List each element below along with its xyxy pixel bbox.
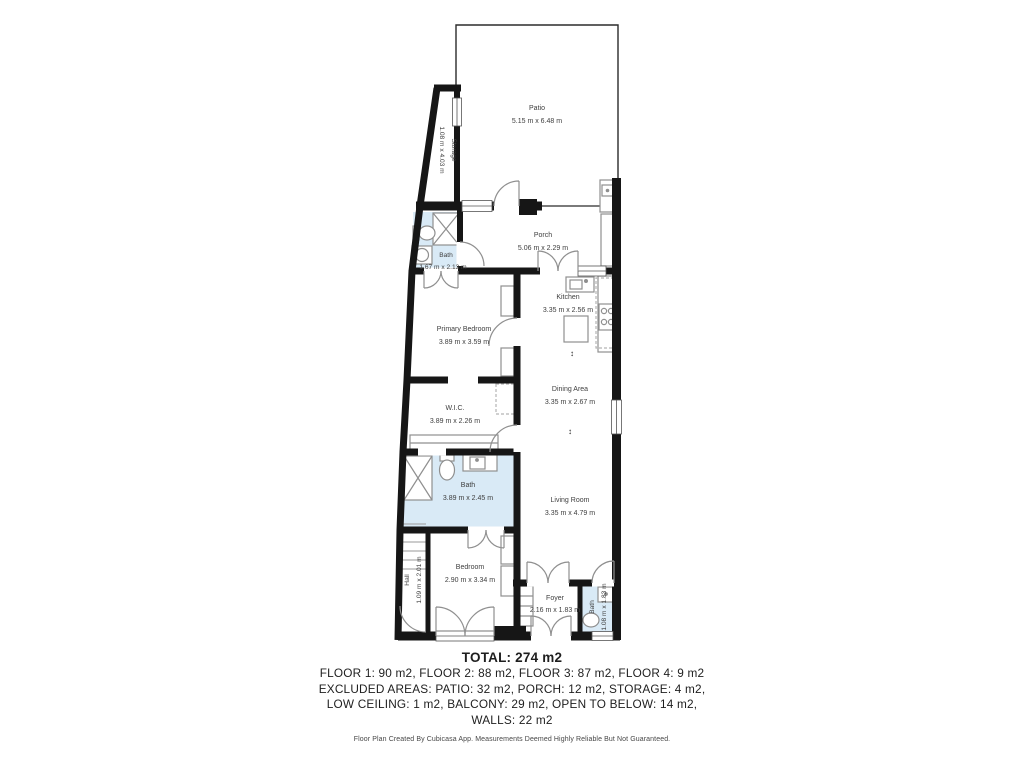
plan-summary: TOTAL: 274 m2 FLOOR 1: 90 m2, FLOOR 2: 8… bbox=[0, 649, 1024, 743]
bath-entry-dims: 1.08 m x 1.83 m bbox=[601, 583, 608, 631]
wic-shelves-dashed bbox=[496, 384, 515, 414]
bath-mid-label: Bath bbox=[461, 482, 476, 489]
porch-label: Porch bbox=[534, 232, 552, 239]
primary-bedroom-label: Primary Bedroom bbox=[437, 326, 492, 333]
disclaimer: Floor Plan Created By Cubicasa App. Meas… bbox=[0, 736, 1024, 743]
walls-area: WALLS: 22 m2 bbox=[0, 713, 1024, 729]
wic-opening bbox=[448, 377, 478, 384]
kitchen-island bbox=[564, 316, 588, 342]
storage-label: Storage bbox=[450, 138, 457, 161]
wic-side-door-gap bbox=[514, 425, 521, 452]
foyer-dims: 2.16 m x 1.83 m bbox=[530, 607, 580, 614]
dining-label: Dining Area bbox=[552, 386, 588, 393]
hall-dims: 1.09 m x 2.01 m bbox=[416, 556, 423, 604]
storage-dims: 1.08 m x 4.03 m bbox=[438, 126, 445, 174]
hall-arc bbox=[400, 606, 426, 632]
patio-sink-drain bbox=[606, 189, 608, 191]
bedroom-closet-2 bbox=[501, 566, 514, 596]
porch-door-right bbox=[558, 251, 578, 271]
hall-label-group: Hall 1.09 m x 2.01 m bbox=[404, 556, 423, 604]
excluded-areas-2: LOW CEILING: 1 m2, BALCONY: 29 m2, OPEN … bbox=[0, 697, 1024, 713]
bath-mid-dims: 3.89 m x 2.45 m bbox=[443, 495, 493, 502]
primary-bedroom-dims: 3.89 m x 3.59 m bbox=[439, 339, 489, 346]
kitchen-sink bbox=[570, 280, 582, 289]
primary-closet-1 bbox=[501, 286, 514, 316]
living-label: Living Room bbox=[551, 497, 590, 504]
porch-door-left bbox=[538, 251, 558, 271]
toilet-top bbox=[419, 226, 435, 240]
patio-label: Patio bbox=[529, 105, 545, 112]
bath-mid-opening bbox=[418, 449, 446, 456]
kitchen-dims: 3.35 m x 2.56 m bbox=[543, 307, 593, 314]
kitchen-faucet bbox=[585, 280, 588, 283]
dining-dims: 3.35 m x 2.67 m bbox=[545, 399, 595, 406]
primary-closet-2 bbox=[501, 348, 514, 376]
bath-top-door bbox=[460, 242, 484, 266]
primary-side-door bbox=[489, 318, 517, 346]
hall-label: Hall bbox=[404, 574, 411, 586]
bath-top-label: Bath bbox=[439, 252, 453, 259]
excluded-areas-1: EXCLUDED AREAS: PATIO: 32 m2, PORCH: 12 … bbox=[0, 682, 1024, 698]
total-area: TOTAL: 274 m2 bbox=[0, 649, 1024, 666]
bedroom-closet-1 bbox=[501, 536, 514, 564]
foyer-label: Foyer bbox=[546, 595, 565, 602]
patio-outline bbox=[456, 25, 618, 206]
toilet-mid bbox=[440, 460, 455, 480]
faucet-mid bbox=[476, 459, 479, 462]
patio-door-gap bbox=[494, 201, 519, 211]
patio-dims: 5.15 m x 6.48 m bbox=[512, 118, 562, 125]
floor-areas: FLOOR 1: 90 m2, FLOOR 2: 88 m2, FLOOR 3:… bbox=[0, 666, 1024, 682]
living-dims: 3.35 m x 4.79 m bbox=[545, 510, 595, 517]
primary-side-door-gap bbox=[514, 318, 521, 346]
bedroom-label: Bedroom bbox=[456, 564, 485, 571]
wic-label: W.I.C. bbox=[445, 405, 464, 412]
bath-top-dims: 1.67 m x 2.13 m bbox=[419, 264, 467, 271]
bedroom-dims: 2.90 m x 3.34 m bbox=[445, 577, 495, 584]
level-arrow-icon: ↕ bbox=[568, 427, 572, 436]
porch-dims: 5.06 m x 2.29 m bbox=[518, 245, 568, 252]
bath-entry-label: Bath bbox=[589, 600, 596, 614]
wic-dims: 3.89 m x 2.26 m bbox=[430, 418, 480, 425]
porch-pillar bbox=[519, 199, 537, 215]
toilet-entry bbox=[583, 613, 599, 627]
bath-top-door-gap bbox=[457, 242, 464, 266]
kitchen-label: Kitchen bbox=[556, 294, 579, 301]
entry-wall-block bbox=[494, 626, 526, 640]
level-arrow-icon: ↕ bbox=[570, 349, 574, 358]
